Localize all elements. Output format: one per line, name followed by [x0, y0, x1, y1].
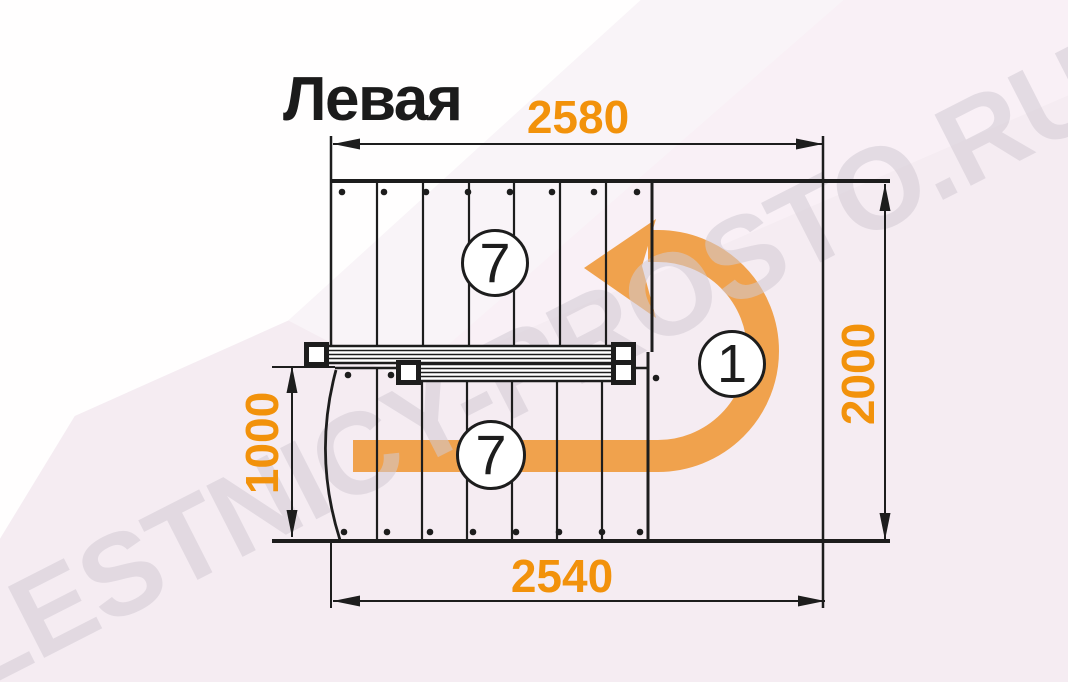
arrowhead-top-left: [333, 139, 360, 150]
dimension-left-label: 1000: [239, 343, 285, 543]
dimension-bottom-label: 2540: [462, 553, 662, 599]
arrowhead-bottom-left: [333, 596, 360, 607]
lower-flight-step-count: 7: [475, 427, 506, 483]
arrowhead-left-down: [287, 510, 298, 537]
landing-count-badge: 1: [698, 330, 766, 398]
upper-flight-step-count: 7: [479, 235, 510, 291]
dimension-top-label: 2580: [478, 94, 678, 140]
landing-count: 1: [717, 337, 747, 391]
arrowhead-top-right: [796, 139, 823, 150]
arrowhead-bottom-right: [798, 596, 825, 607]
page-title: Левая: [283, 64, 461, 135]
lower-flight-step-count-badge: 7: [456, 420, 526, 490]
beam-post-left-upper: [307, 345, 327, 365]
arrowhead-right-up: [880, 184, 891, 211]
staircase-plan-diagram: LESTNICY-PROSTO.RU: [0, 0, 1068, 682]
upper-flight-step-count-badge: 7: [461, 229, 529, 297]
landing-beams: [307, 345, 634, 383]
curved-first-step-edge: [325, 370, 340, 540]
beam-post-right-lower: [614, 363, 634, 383]
arrowhead-right-down: [880, 513, 891, 540]
dimension-right-label: 2000: [835, 274, 881, 474]
arrowhead-left-up: [287, 366, 298, 393]
beam-post-left-lower: [399, 363, 419, 383]
